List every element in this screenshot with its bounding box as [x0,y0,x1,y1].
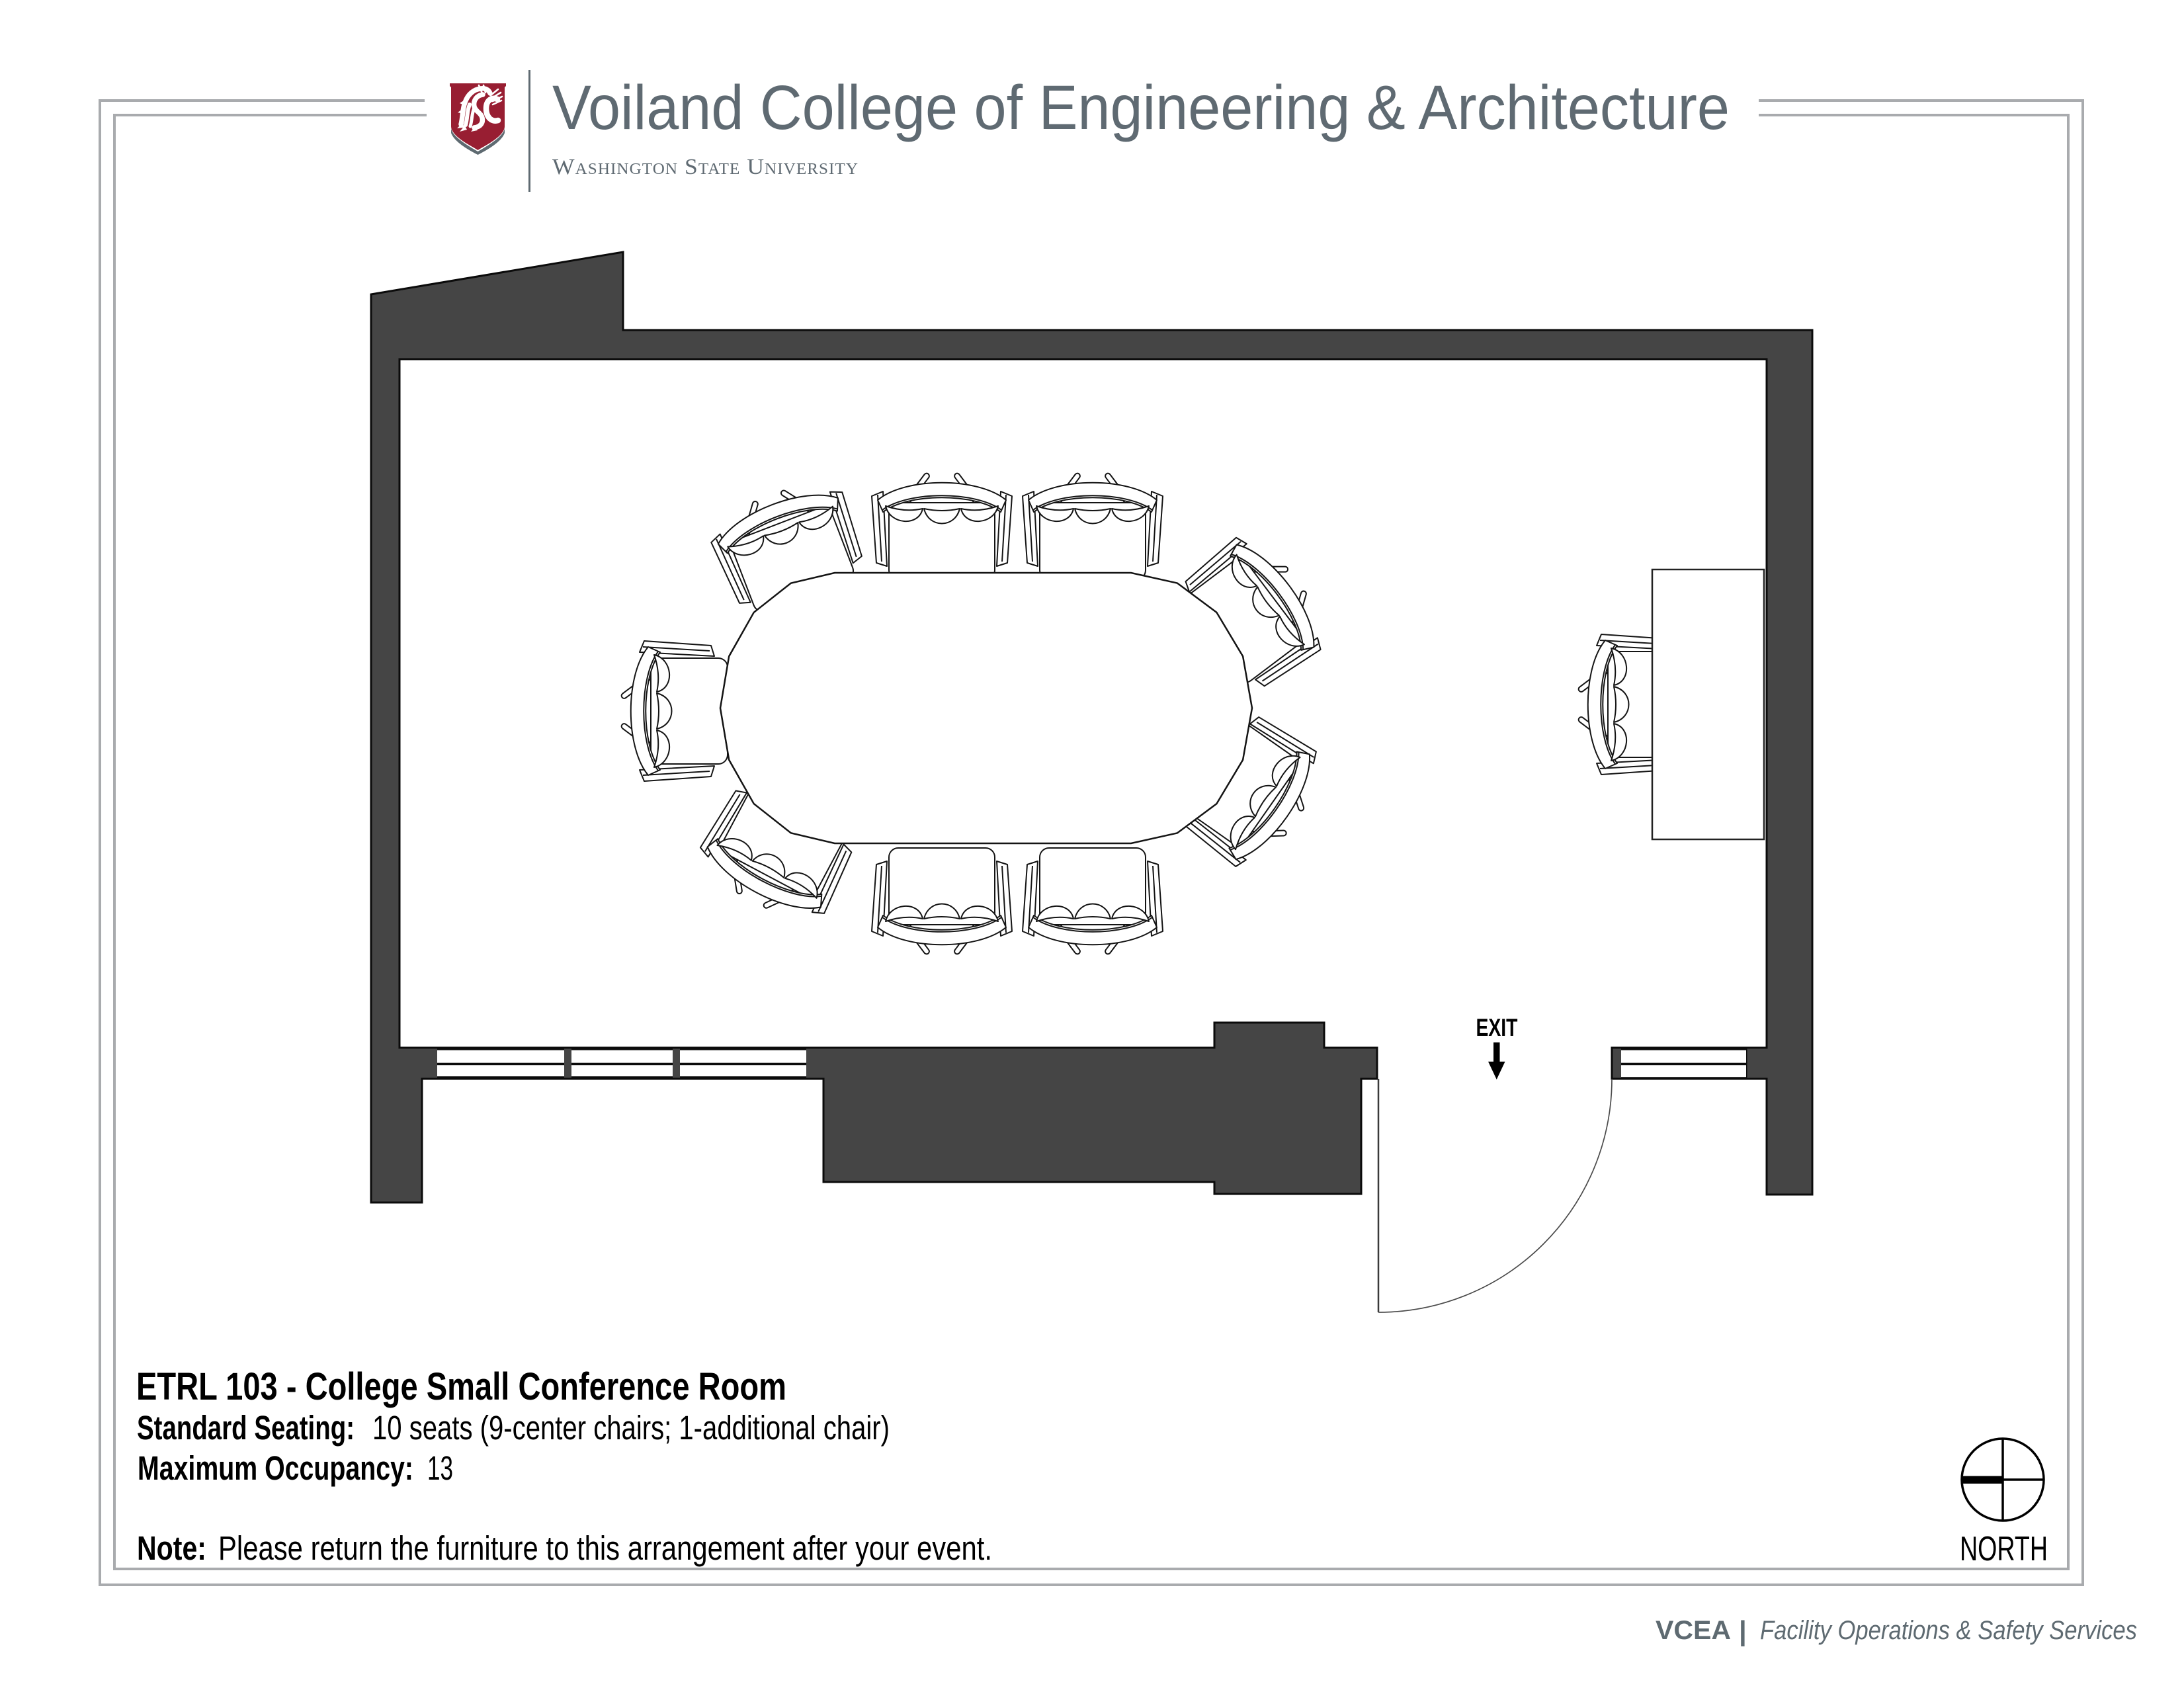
svg-text:EXIT: EXIT [1476,1014,1518,1041]
svg-text:ETRL 103 - College Small Confe: ETRL 103 - College Small Conference Room [136,1365,786,1408]
svg-text:Washington State University: Washington State University [552,155,859,179]
svg-text:13: 13 [427,1449,453,1487]
svg-text:Note:: Note: [137,1529,206,1567]
svg-text:10 seats (9-center chairs; 1-a: 10 seats (9-center chairs; 1-additional … [372,1409,890,1447]
svg-text:Standard Seating:: Standard Seating: [137,1409,355,1447]
svg-text:NORTH: NORTH [1960,1530,2048,1568]
svg-text:Maximum Occupancy:: Maximum Occupancy: [138,1449,413,1487]
svg-text:Voiland College of Engineering: Voiland College of Engineering & Archite… [552,73,1730,143]
svg-text:Facility Operations & Safety S: Facility Operations & Safety Services [1760,1616,2137,1645]
svg-text:|: | [1739,1615,1747,1647]
svg-text:Please return the furniture to: Please return the furniture to this arra… [218,1529,992,1567]
svg-text:VCEA: VCEA [1656,1616,1731,1645]
